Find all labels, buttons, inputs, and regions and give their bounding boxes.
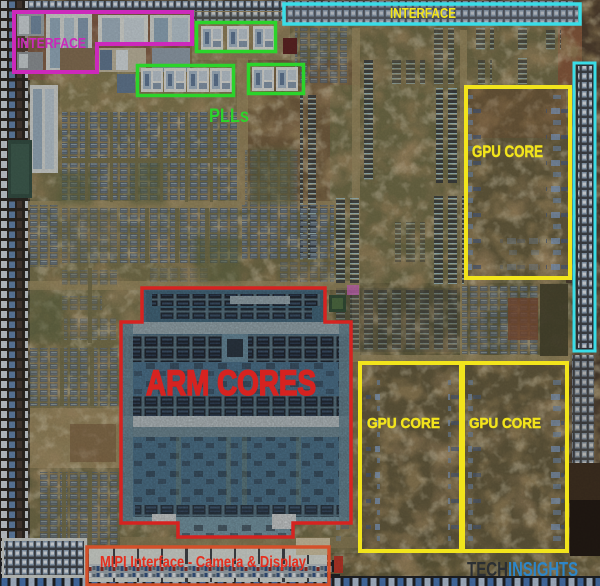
svg-text:GPU CORE: GPU CORE [367,415,440,432]
svg-text:INTERFACE: INTERFACE [390,5,456,22]
svg-text:INTERFACE: INTERFACE [17,35,86,52]
svg-text:TECH: TECH [467,559,508,581]
svg-text:GPU CORE: GPU CORE [469,415,541,432]
svg-text:INSIGHTS: INSIGHTS [508,559,578,581]
svg-text:MIPI Interface - Camera & Disp: MIPI Interface - Camera & Display [100,554,306,571]
svg-text:PLLs: PLLs [209,106,249,127]
svg-text:GPU CORE: GPU CORE [472,142,543,161]
svg-text:ARM CORES: ARM CORES [146,364,316,403]
